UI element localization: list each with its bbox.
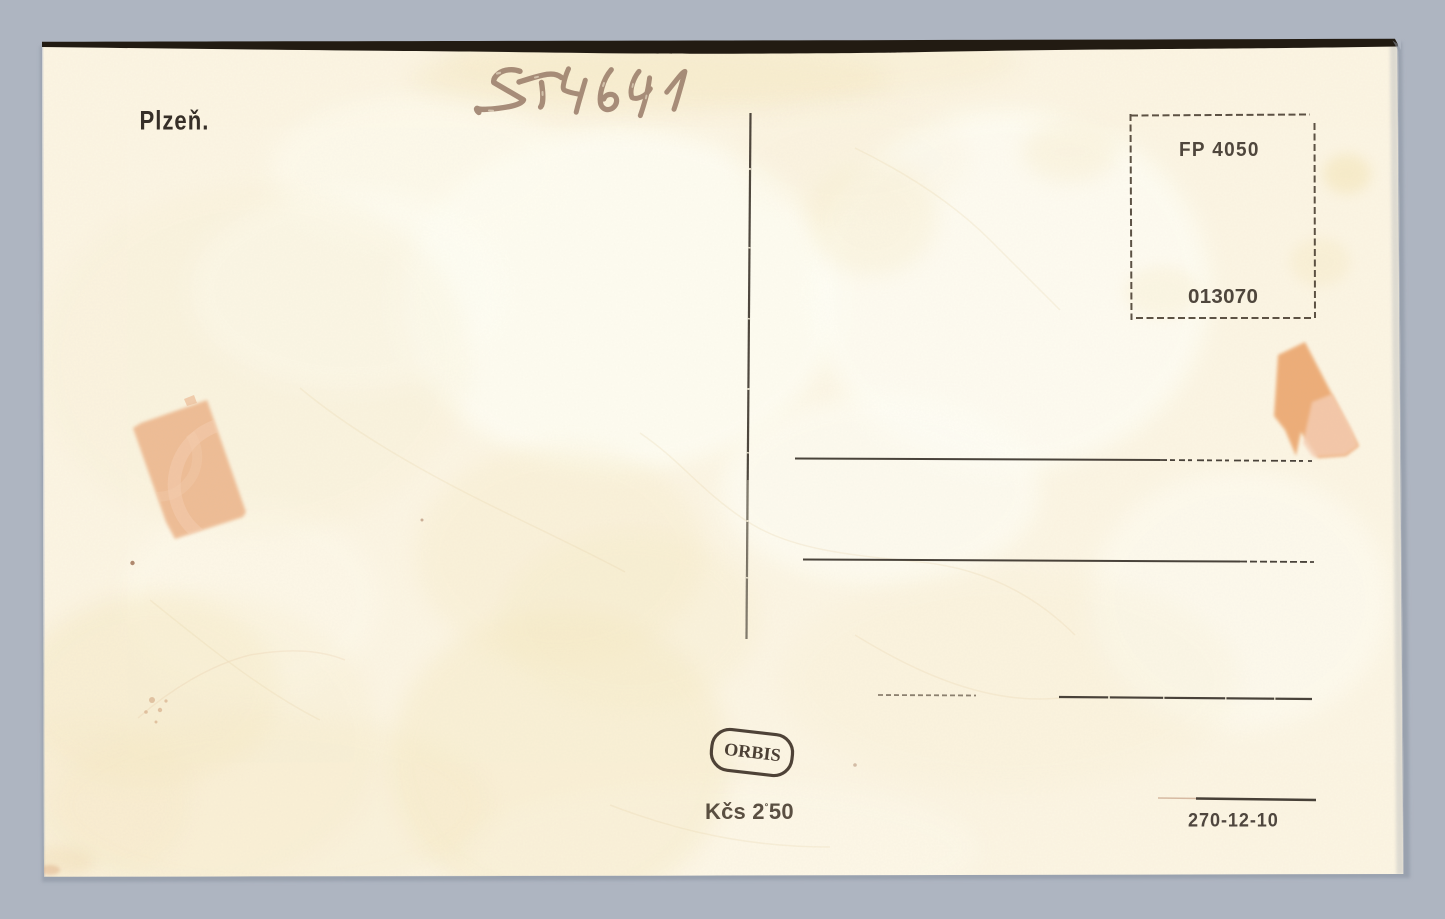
svg-text:013070: 013070 [1188,285,1258,308]
svg-text:FP 4050: FP 4050 [1179,139,1260,162]
svg-text:Kčs 2˚50: Kčs 2˚50 [705,799,794,824]
svg-text:Plzeň.: Plzeň. [140,106,210,136]
svg-text:270-12-10: 270-12-10 [1188,809,1279,831]
